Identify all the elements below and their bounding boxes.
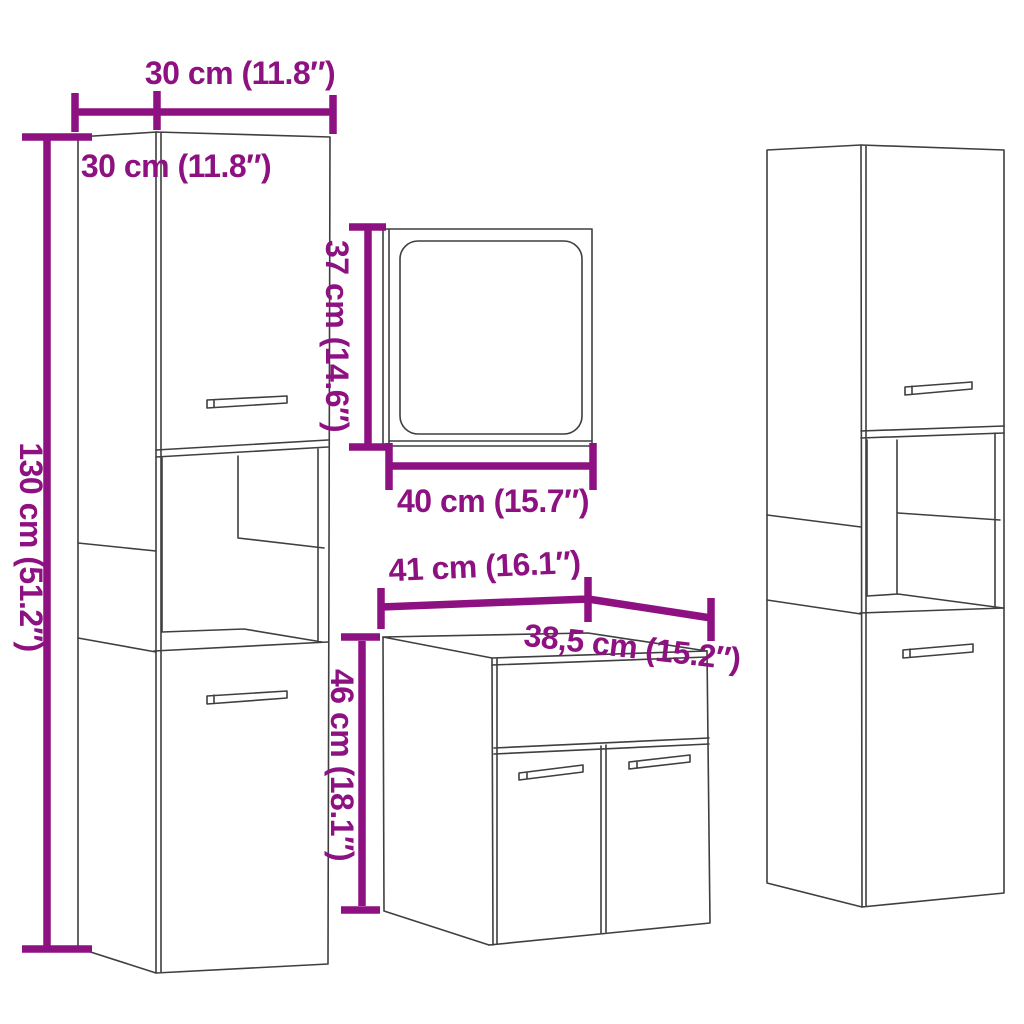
label-mirror-width: 40 cm (15.7″) [397,483,589,519]
cabinet-right-lower-door-top [860,608,1004,613]
sink-cabinet-left-side [383,637,497,945]
cabinet-left-upper-door-handle [207,396,287,408]
cabinet-right-lower-door-handle [903,644,973,658]
cabinet-left-front-face [156,132,330,973]
sink-cabinet-left-door-handle [519,765,583,780]
sink-cabinet-door-divider [601,745,606,933]
product-dimension-diagram: 30 cm (11.8″) 30 cm (11.8″) 130 cm (51.2… [0,0,1024,1024]
cabinet-left-lower-door-top [154,642,328,651]
mirror-glass [400,241,582,434]
cabinet-right-upper-door-handle [905,382,972,395]
cabinet-right-open-shelf [867,433,1003,608]
tall-cabinet-left-drawing [78,132,330,973]
dimension-labels: 30 cm (11.8″) 30 cm (11.8″) 130 cm (51.2… [13,55,742,861]
cabinet-right-upper-door-bottom [861,426,1004,438]
sink-cabinet-drawing [383,633,710,945]
cabinet-left-upper-door-bottom [156,440,328,457]
label-cabinet-top-width: 30 cm (11.8″) [145,55,335,91]
dim-cabinet-top-width-line [75,91,333,134]
cabinet-right-side-seams [767,515,861,614]
cabinet-left-side-panel [78,132,157,973]
wall-mirror-drawing [383,229,592,446]
label-cabinet-top-depth: 30 cm (11.8″) [81,148,271,184]
sink-cabinet-right-door-handle [629,755,690,769]
cabinet-left-side-seams [78,543,156,652]
dimension-lines [22,91,711,949]
label-sink-width: 41 cm (16.1″) [388,544,581,588]
cabinet-left-open-shelf [162,449,324,642]
sink-cabinet-front-face [489,651,710,945]
bathroom-furniture-set-drawing: 30 cm (11.8″) 30 cm (11.8″) 130 cm (51.2… [0,0,1024,1024]
mirror-outer-frame [383,229,592,446]
label-mirror-height: 37 cm (14.6″) [319,240,355,432]
tall-cabinet-right-drawing [767,145,1004,907]
label-cabinet-height: 130 cm (51.2″) [13,442,49,651]
cabinet-left-lower-door-handle [207,691,287,704]
cabinet-right-front-face [861,145,1004,907]
label-sink-height: 46 cm (18.1″) [324,669,360,861]
